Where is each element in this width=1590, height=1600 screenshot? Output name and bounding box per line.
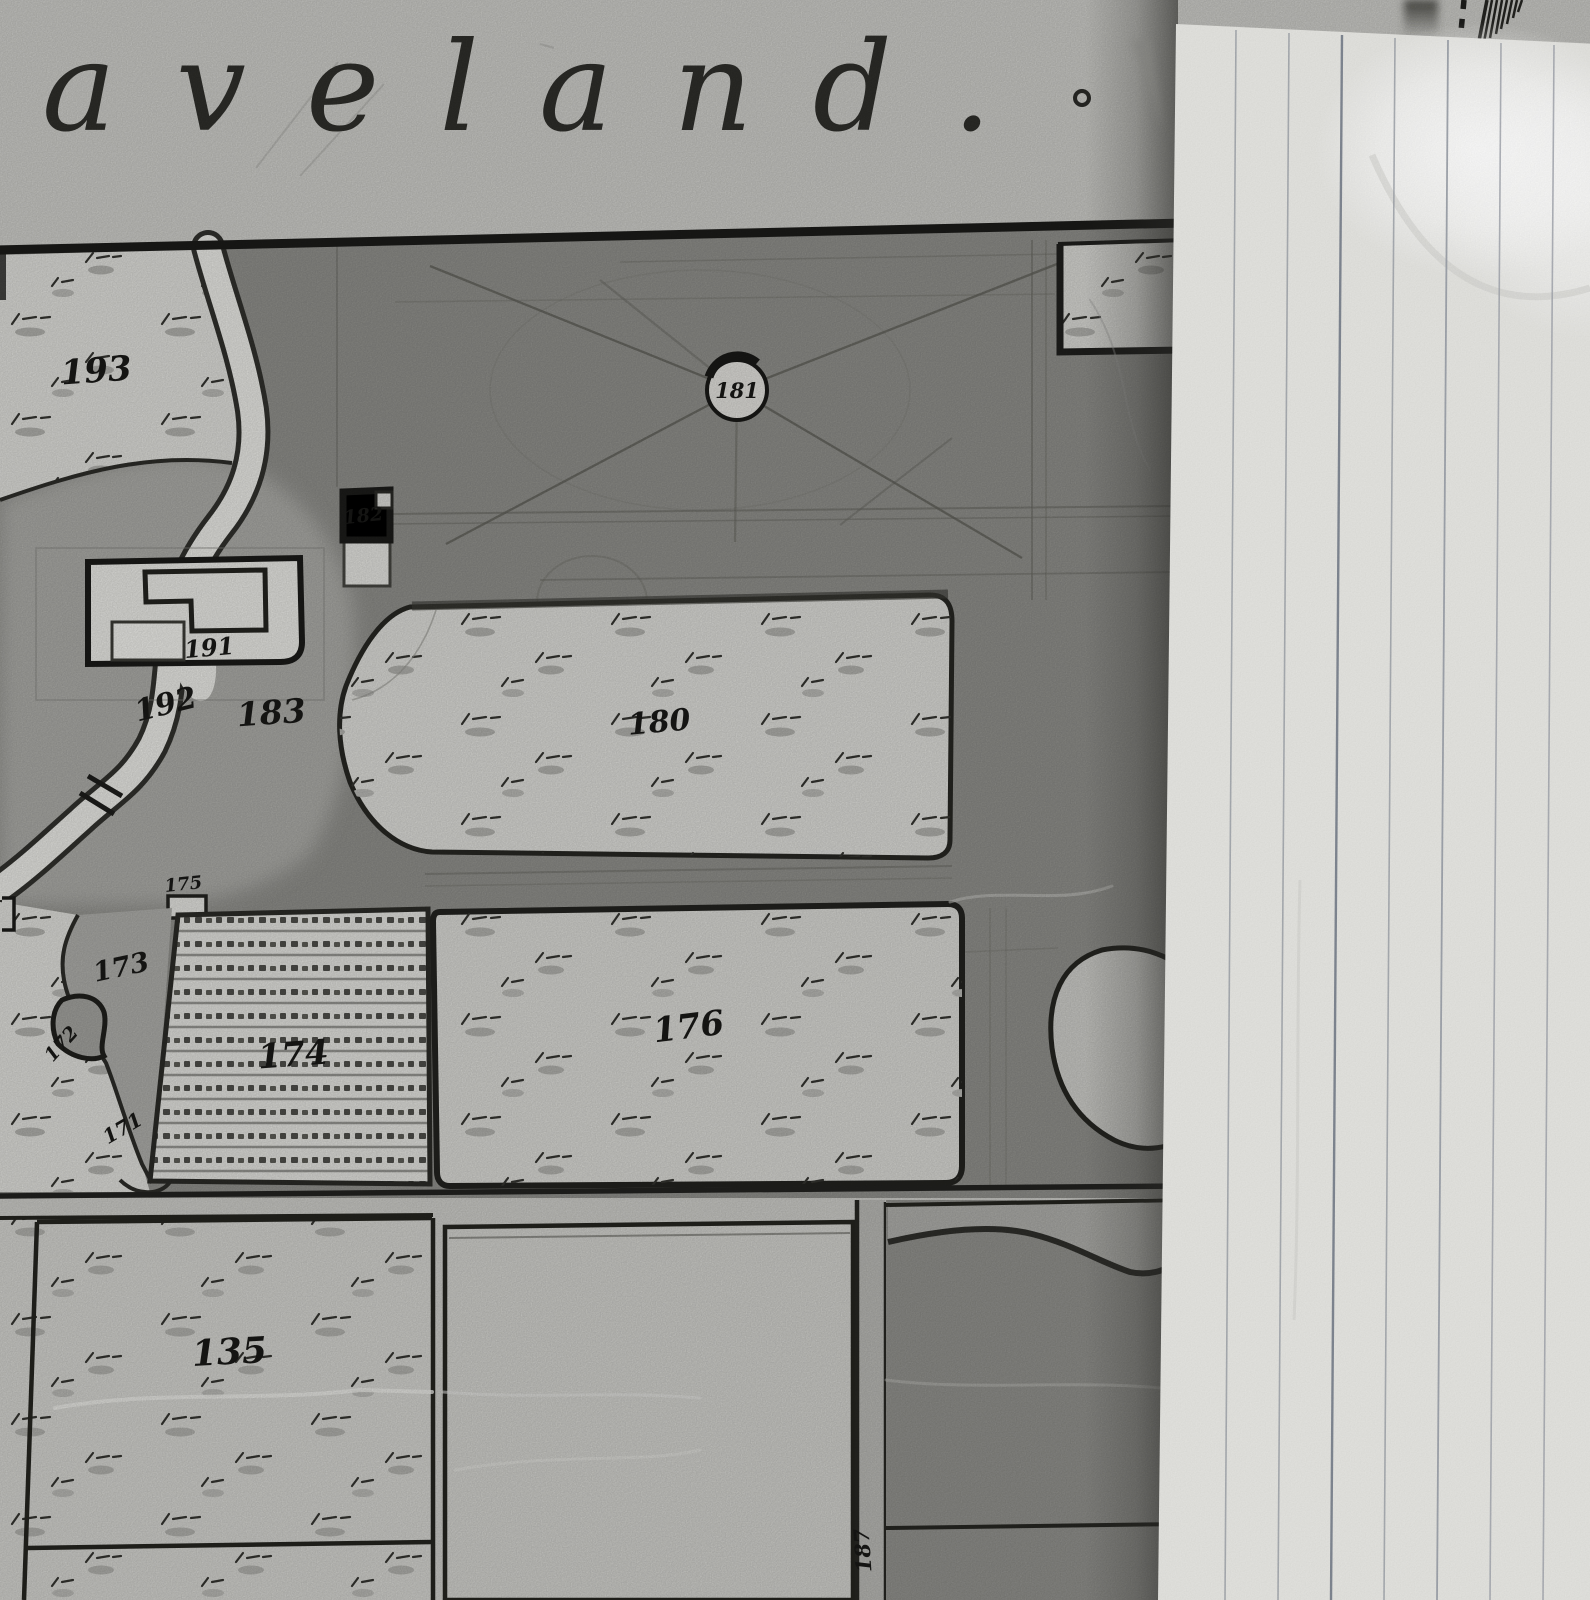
film-grain-overall	[0, 0, 1590, 1600]
photo-of-estate-map: aveland.	[0, 0, 1590, 1600]
